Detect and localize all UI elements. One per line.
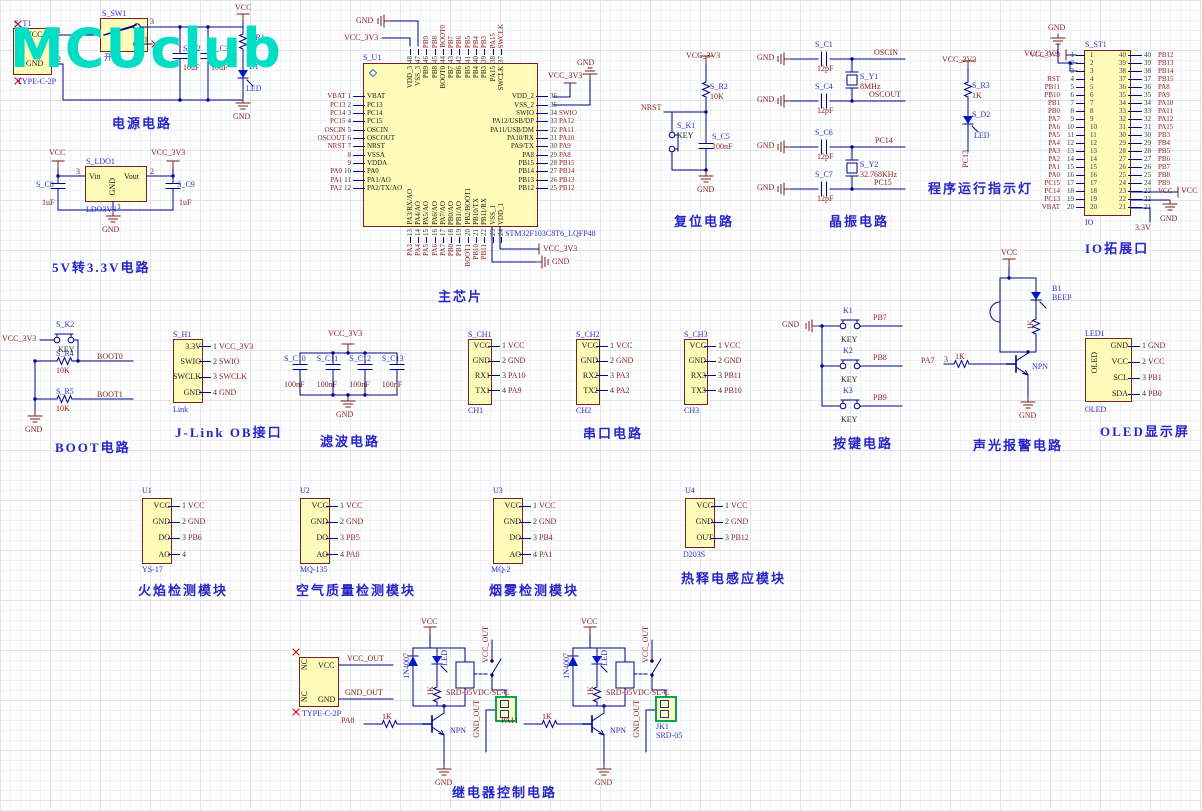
- pin-name: PA11/USB/DM: [490, 127, 534, 134]
- wire-stub: [1076, 135, 1085, 136]
- pin-col: 17 PA7: [439, 229, 447, 291]
- gnd-label: GND: [757, 183, 774, 192]
- pin-number: 12: [344, 185, 351, 192]
- jk1-ref: JK1: [656, 722, 669, 731]
- wire-stub: [1076, 191, 1085, 192]
- pin-number-inner: 32: [1106, 116, 1126, 123]
- wire-stub: [199, 361, 211, 362]
- k1-label: KEY: [677, 131, 693, 140]
- wire-stub: [1128, 378, 1140, 379]
- wire-stub: [536, 113, 548, 114]
- chip-bottom-pin-names: PA3/RX/AOPA4/AOPA5/AOPA6/AOPA7/AOPB0/AOP…: [406, 163, 506, 225]
- wire-stub: [1076, 87, 1085, 88]
- ldo-part: LDO3V3: [86, 205, 116, 214]
- pin-number: 22: [481, 229, 488, 236]
- pin-name-col: SWCLK: [497, 66, 505, 122]
- net-label: VCC: [539, 502, 555, 510]
- cap-ref: S_C10: [284, 355, 317, 363]
- y1-ref: S_Y1: [860, 72, 878, 81]
- d2-value: LED: [974, 131, 990, 140]
- pin-number: 37: [1144, 76, 1156, 83]
- pushbutton-icon[interactable]: [836, 400, 864, 409]
- net-label: PB14: [559, 168, 575, 175]
- wire-stub: [1128, 111, 1142, 112]
- wire-stub: [326, 538, 338, 539]
- relay-coil-icon[interactable]: [456, 662, 474, 688]
- pin-name: PB12: [518, 185, 534, 192]
- pin-row: 4 PA9: [488, 383, 526, 398]
- net-label: PC15: [1044, 180, 1060, 187]
- led-icon[interactable]: [1031, 292, 1046, 308]
- u1-pin-labels: 1 VCC 2 GND 3 PB6 4: [168, 498, 205, 563]
- net-label: BOOT1: [465, 244, 472, 267]
- wire-stub: [1128, 103, 1142, 104]
- pin-name: SDA: [1112, 390, 1128, 398]
- resistor-icon[interactable]: [703, 79, 710, 101]
- ch3-name: CH3: [684, 406, 699, 415]
- wire-stub: [536, 96, 548, 97]
- pin-number-inner: 14: [1087, 156, 1100, 163]
- wire-stub: [459, 49, 460, 55]
- section-title-mcu: 主芯片: [438, 289, 483, 305]
- net-label: PB12: [559, 185, 575, 192]
- wire-stub: [418, 237, 419, 243]
- relay2-terminal[interactable]: [655, 696, 677, 722]
- vcc3v3-label: VCC_3V3: [328, 329, 362, 338]
- net-label: PA9: [508, 387, 522, 395]
- pin-row: RST 4 4: [1010, 75, 1100, 83]
- gnd-label: GND: [233, 112, 250, 121]
- relay-coil-icon[interactable]: [616, 662, 634, 688]
- pin-name: VDD_1: [498, 203, 505, 225]
- pin-name: PA9/TX: [511, 143, 534, 150]
- pin-number: 33: [1144, 108, 1156, 115]
- pin-col: PB9 46: [423, 14, 431, 63]
- wire-stub: [1128, 175, 1142, 176]
- pin-number: 13: [407, 229, 414, 236]
- pin-number: 4: [610, 387, 614, 395]
- wire-stub: [443, 49, 444, 55]
- wire-stub: [519, 538, 531, 539]
- wire-stub: [353, 171, 365, 172]
- resistor-icon[interactable]: [539, 721, 561, 728]
- pin-number: 20: [465, 229, 472, 236]
- pin-number: 19: [1062, 196, 1074, 203]
- section-title-relay: 继电器控制电路: [452, 785, 557, 801]
- ground-icon: [597, 765, 611, 775]
- wire-stub: [488, 346, 500, 347]
- pin-name: VBAT: [367, 93, 385, 100]
- pin-number: 3: [944, 355, 948, 364]
- net-label: VBAT: [1042, 204, 1060, 211]
- gnd-label: GND: [595, 778, 612, 787]
- pin-name-row: GND: [495, 514, 521, 530]
- pin-number: 8: [348, 152, 352, 159]
- pin-number: 4: [213, 389, 217, 397]
- io-ref: S_ST1: [1085, 40, 1107, 49]
- net-label: PC14: [330, 110, 346, 117]
- pin-name-row: SDA: [1094, 386, 1128, 402]
- keys-ports: [806, 320, 818, 332]
- resistor-icon[interactable]: [951, 361, 973, 368]
- pin-number: 30: [1144, 132, 1156, 139]
- pin-number: 4: [182, 551, 186, 559]
- pin-number: 2: [348, 102, 352, 109]
- ground-icon: [699, 172, 713, 182]
- pin-name-row: AO: [495, 547, 521, 563]
- pin-number: 34: [1144, 100, 1156, 107]
- wire-stub: [536, 163, 548, 164]
- led-label: LED: [440, 650, 449, 666]
- pin-name-row: PA2/TX/AO: [367, 184, 402, 192]
- ground-icon: [778, 53, 790, 65]
- net-label: PA0: [346, 551, 360, 559]
- pin-number: 27: [550, 168, 557, 175]
- crystal-icon[interactable]: [846, 160, 858, 176]
- ch2-pin-labels: 1 VCC 2 GND 3 PA3 4 PA2: [596, 339, 633, 398]
- schematic-canvas[interactable]: S_T1 VCC GND 1 2 TYPE-C-2P S_SW1 开关 3 1 …: [0, 0, 1202, 811]
- pin-number: 2: [182, 518, 186, 526]
- pin-number-inner: 34: [1106, 100, 1126, 107]
- pin-number-inner: 13: [1087, 148, 1100, 155]
- net-label: PA12: [1158, 116, 1173, 123]
- pin-number: 7: [348, 143, 352, 150]
- pin-number: 1: [182, 502, 186, 510]
- pin-number: 1: [340, 502, 344, 510]
- c9-value: 1uF: [179, 198, 191, 207]
- cap-value: 100nF: [349, 381, 382, 389]
- net-label: PB0: [1148, 390, 1162, 398]
- pin-row: 36: [536, 93, 577, 101]
- wire-stub: [451, 49, 452, 55]
- pin-row: 2 GND: [704, 354, 742, 369]
- wire-stub: [1128, 119, 1142, 120]
- pin-number: 12: [1062, 140, 1074, 147]
- pin-name-row: VCC: [578, 339, 598, 354]
- net-label: PA10: [1158, 100, 1173, 107]
- pin-name: PC14: [367, 110, 383, 117]
- net-label: PA3: [616, 372, 630, 380]
- pin-name: PB3: [481, 66, 488, 78]
- pin-number: 41: [465, 56, 472, 63]
- wire-stub: [1128, 55, 1142, 56]
- wire-stub: [1128, 346, 1140, 347]
- pin-name-row: VCC: [470, 339, 490, 354]
- pin-name: PB13: [518, 177, 534, 184]
- net-label: PB1: [1048, 100, 1060, 107]
- pin-col: 23: [489, 229, 497, 291]
- pin-number: 1: [1062, 52, 1074, 59]
- wire-stub: [1076, 63, 1085, 64]
- npn-transistor-icon[interactable]: [423, 713, 444, 735]
- wire-stub: [410, 237, 411, 243]
- pin-number-inner: 4: [1087, 76, 1100, 83]
- capacitor-icon[interactable]: [699, 144, 713, 149]
- section-title-keys: 按键电路: [833, 436, 893, 452]
- wire-stub: [353, 138, 365, 139]
- net-label: PC15: [330, 118, 346, 125]
- section-title-pir: 热释电感应模块: [681, 571, 786, 587]
- net-label: PB15: [1158, 76, 1174, 83]
- pin-number-inner: 33: [1106, 108, 1126, 115]
- net-label: PB9: [1158, 180, 1170, 187]
- ground-icon: [806, 320, 818, 332]
- wire-stub: [493, 237, 494, 243]
- pin-row: VBAT 1: [287, 93, 365, 101]
- pin-number-inner: 1: [1087, 52, 1100, 59]
- net-label: PA10: [508, 372, 526, 380]
- reset-wires: [664, 63, 713, 172]
- ground-icon: [1051, 34, 1065, 44]
- nrst-label: NRST: [641, 103, 661, 112]
- ground-icon: [341, 397, 355, 407]
- wire-stub: [353, 121, 365, 122]
- net-label: VCC: [346, 502, 362, 510]
- pin-number-inner: 37: [1106, 76, 1126, 83]
- crystal-icon[interactable]: [846, 72, 858, 88]
- pin-number-inner: 39: [1106, 60, 1126, 67]
- net-label: PA0: [1048, 172, 1060, 179]
- ground-icon: [778, 95, 790, 107]
- wire-stub: [1128, 63, 1142, 64]
- pin-number-inner: 18: [1087, 188, 1100, 195]
- pin-name: PB8: [432, 66, 439, 78]
- pa8-label: PA8: [341, 716, 355, 725]
- pin-number: 23: [1144, 188, 1156, 195]
- net-label: PA5: [1048, 132, 1060, 139]
- cap-value: 100nF: [317, 381, 350, 389]
- net-label: PB6: [456, 36, 463, 48]
- oled-part: OLED: [1085, 405, 1106, 414]
- pin-name: VSSA: [367, 152, 385, 159]
- net-label: VCC: [616, 342, 632, 350]
- ground-icon: [778, 141, 790, 153]
- pin-number: 4: [533, 551, 537, 559]
- pin-number: 15: [1062, 164, 1074, 171]
- resistor-icon[interactable]: [54, 396, 76, 403]
- wire-stub: [1076, 199, 1085, 200]
- wire-stub: [536, 138, 548, 139]
- gnd-label: GND: [697, 185, 714, 194]
- pin-number: 3: [213, 373, 217, 381]
- c4-value: 12pF: [817, 106, 833, 115]
- wire-stub: [1076, 119, 1085, 120]
- pin-row: 1 VCC_3V3: [199, 339, 253, 354]
- pin-name-row: GND: [470, 354, 490, 369]
- wire-stub: [704, 375, 716, 376]
- pin-name-col: PB8: [431, 66, 439, 122]
- pin-row: 8: [287, 151, 365, 159]
- net-label: PB6: [188, 534, 202, 542]
- pin-name: NRST: [367, 143, 385, 150]
- pin-name-row: NRST: [367, 143, 402, 151]
- net-label: PA5: [423, 244, 430, 256]
- boot-wires: [33, 334, 133, 412]
- pin-row: PC13 2: [287, 101, 365, 109]
- pin-name: VSS_1: [490, 205, 497, 225]
- pin-number: 9: [348, 160, 352, 167]
- wire-stub: [468, 237, 469, 243]
- wire-stub: [326, 506, 338, 507]
- wire-stub: [484, 237, 485, 243]
- pin-name-row: VCC: [686, 339, 706, 354]
- wire-stub: [711, 538, 723, 539]
- net-label: PA9: [1158, 92, 1170, 99]
- pin-number: 10: [1062, 124, 1074, 131]
- wire-stub: [1128, 183, 1142, 184]
- net-label: PB12: [1158, 52, 1174, 59]
- gnd-out-label: GND_OUT: [632, 700, 641, 738]
- pin-number-inner: 35: [1106, 92, 1126, 99]
- pushbutton-icon[interactable]: [836, 320, 864, 329]
- wire-stub: [353, 180, 365, 181]
- pin-row: 2 GND: [596, 354, 633, 369]
- gnd-label: GND: [356, 16, 373, 25]
- led-resistor-value: 1K: [1026, 320, 1035, 330]
- section-title-serial: 串口电路: [583, 426, 643, 442]
- pin-number: 2: [718, 357, 722, 365]
- pin-number: 47: [415, 56, 422, 63]
- net-label: VCC_3V3: [219, 343, 253, 351]
- pin-name-row: GND: [686, 354, 706, 369]
- pin-name-row: GND: [175, 385, 201, 400]
- pin-number-inner: 3: [1087, 68, 1100, 75]
- u2-ref: U2: [300, 486, 310, 495]
- net-label: PB4: [539, 534, 553, 542]
- wire-stub: [488, 375, 500, 376]
- pin-number: 1: [1142, 342, 1146, 350]
- pin-name: PB15: [518, 160, 534, 167]
- tc-nc-label: NC: [300, 691, 309, 702]
- pin-row: 39 39 PB13: [1106, 59, 1174, 67]
- net-label: PC14: [1044, 188, 1060, 195]
- gnd-out-label: GND_OUT: [345, 688, 383, 697]
- wire-stub: [1128, 362, 1140, 363]
- pin-number-inner: 31: [1106, 124, 1126, 131]
- pin-row: 4 PA2: [596, 383, 633, 398]
- pin-name-row: RX2: [578, 369, 598, 384]
- npn-transistor-icon[interactable]: [1007, 353, 1028, 375]
- net-label: PA3: [1048, 148, 1060, 155]
- pin-number: 11: [344, 177, 351, 184]
- wire-stub: [1076, 127, 1085, 128]
- pin-name-row: GND: [578, 354, 598, 369]
- resistor-icon[interactable]: [54, 358, 76, 365]
- pin-number-inner: 28: [1106, 148, 1126, 155]
- wire-stub: [1076, 183, 1085, 184]
- wire-stub: [536, 155, 548, 156]
- pushbutton-icon[interactable]: [50, 334, 78, 343]
- pin-row: 2 2: [1010, 59, 1100, 67]
- pin-row: 2 GND: [326, 514, 363, 530]
- pin-number: 1: [610, 342, 614, 350]
- wire-stub: [1076, 71, 1085, 72]
- wire-stub: [476, 49, 477, 55]
- boot-ports: [28, 412, 42, 422]
- vcc-bar-icon: [342, 344, 354, 351]
- pin-name: PB5: [465, 66, 472, 78]
- pin-number: 5: [348, 127, 352, 134]
- pin-number: 36: [550, 93, 557, 100]
- vcc-label: VCC: [421, 617, 437, 626]
- pin-row: 2 GND: [711, 514, 749, 530]
- pin-number-inner: 26: [1106, 164, 1126, 171]
- pin-number: 8: [1062, 108, 1074, 115]
- net-label: PA6: [432, 244, 439, 256]
- u2-part: MQ-135: [300, 565, 328, 574]
- net-label: PA4: [415, 244, 422, 256]
- pin-name: PB1/AO: [456, 201, 463, 225]
- jk1-part: SRD-05: [656, 731, 682, 740]
- pin-name-row: GND: [687, 514, 713, 530]
- wire-stub: [426, 237, 427, 243]
- vcc3v3-label: VCC_3V3: [942, 55, 976, 64]
- net-label: PB15: [559, 160, 575, 167]
- net-label: PA0: [330, 168, 342, 175]
- pin-number-inner: 2: [1087, 60, 1100, 67]
- pin-name-row: SWCLK: [175, 370, 201, 385]
- resistor-icon[interactable]: [379, 721, 401, 728]
- pin-name: SWIO: [181, 358, 201, 366]
- pin-row: PA0 10: [287, 168, 365, 176]
- wire-stub: [596, 346, 608, 347]
- net-label: SWCLK: [219, 373, 247, 381]
- resistor-icon[interactable]: [965, 79, 972, 101]
- pin-number: 14: [1062, 156, 1074, 163]
- pin-number: 3: [725, 534, 729, 542]
- pin-number: 45: [432, 56, 439, 63]
- net-label: RST: [1047, 76, 1060, 83]
- net-label: SWCLK: [498, 24, 505, 49]
- pin-name: GND: [1111, 342, 1128, 350]
- no-connect-icon: [293, 709, 299, 715]
- c8-value: 1uF: [42, 198, 54, 207]
- io-left-pins: VCC_3V3 1 1 2 2 3 3 RST 4 4 PB11 5 5 PB1…: [1010, 51, 1100, 212]
- gnd-label: GND: [25, 425, 42, 434]
- wire-stub: [1128, 135, 1142, 136]
- gnd-label: GND: [757, 95, 774, 104]
- net-label: PB6: [1158, 156, 1170, 163]
- base-resistor-value: 1K: [955, 352, 965, 361]
- net-label: VCC: [724, 342, 740, 350]
- pin-number-inner: 10: [1087, 124, 1100, 131]
- pin-number: 15: [423, 229, 430, 236]
- boot1-label: BOOT1: [97, 390, 123, 399]
- pin-name-row: PC15: [367, 118, 402, 126]
- pushbutton-icon[interactable]: [836, 360, 864, 369]
- cap-ref: S_C13: [382, 355, 415, 363]
- pin-number: 37: [498, 56, 505, 63]
- buzzer-icon[interactable]: [990, 302, 1000, 322]
- pin-number: 1: [117, 202, 121, 211]
- wire-stub: [493, 49, 494, 55]
- pin-row: 38 38 PB14: [1106, 67, 1174, 75]
- c1-ref: S_C1: [815, 40, 833, 49]
- pin-name: SCL: [1113, 374, 1128, 382]
- npn-transistor-icon[interactable]: [583, 713, 604, 735]
- u1-ref: U1: [142, 486, 152, 495]
- net-label: PA11: [1158, 108, 1173, 115]
- net-label: PA7: [1048, 116, 1060, 123]
- pin-number: 3: [348, 110, 352, 117]
- boot0-label: BOOT0: [97, 352, 123, 361]
- pin-row: VCC_3V3 1 1: [1010, 51, 1100, 59]
- wire-stub: [596, 390, 608, 391]
- pin-number-inner: 17: [1087, 180, 1100, 187]
- wire-stub: [711, 522, 723, 523]
- pin-row: 1 VCC: [326, 498, 363, 514]
- wire-stub: [168, 554, 180, 555]
